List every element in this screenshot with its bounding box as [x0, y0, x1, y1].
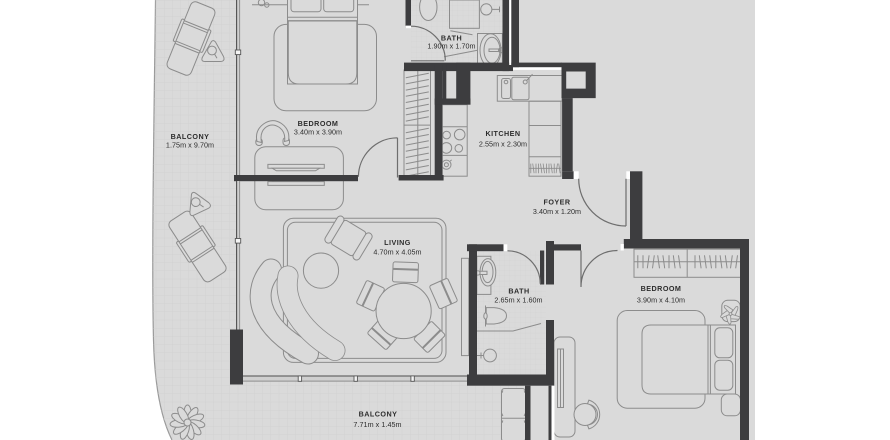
svg-text:2.65m x 1.60m: 2.65m x 1.60m — [494, 296, 542, 305]
svg-text:FOYER: FOYER — [543, 198, 570, 207]
svg-text:3.90m x 4.10m: 3.90m x 4.10m — [637, 296, 685, 305]
svg-text:3.40m x 3.90m: 3.40m x 3.90m — [294, 128, 342, 137]
svg-text:KITCHEN: KITCHEN — [485, 129, 520, 138]
svg-text:BEDROOM: BEDROOM — [641, 284, 682, 293]
svg-text:1.75m x 9.70m: 1.75m x 9.70m — [166, 141, 214, 150]
svg-text:BALCONY: BALCONY — [359, 410, 398, 419]
svg-text:3.40m x 1.20m: 3.40m x 1.20m — [533, 207, 581, 216]
svg-text:BATH: BATH — [508, 287, 529, 296]
svg-text:4.70m x 4.05m: 4.70m x 4.05m — [373, 248, 421, 257]
svg-text:7.71m x 1.45m: 7.71m x 1.45m — [353, 420, 401, 429]
svg-text:LIVING: LIVING — [384, 238, 411, 247]
svg-text:2.55m x 2.30m: 2.55m x 2.30m — [479, 140, 527, 149]
svg-text:1.90m x 1.70m: 1.90m x 1.70m — [427, 42, 475, 51]
